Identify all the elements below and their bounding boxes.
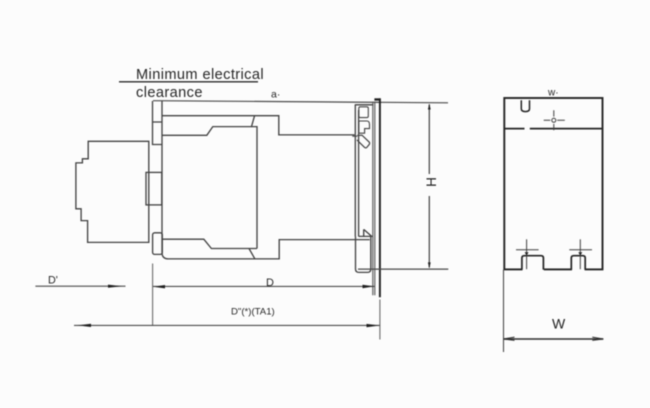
svg-text:clearance: clearance — [136, 85, 203, 101]
svg-text:w·: w· — [547, 88, 559, 99]
svg-text:H: H — [424, 177, 439, 187]
svg-text:D"(*)(TA1): D"(*)(TA1) — [231, 307, 275, 318]
svg-text:D': D' — [48, 274, 58, 286]
svg-text:D: D — [266, 277, 274, 289]
svg-text:a·: a· — [271, 89, 280, 101]
svg-text:W: W — [552, 316, 566, 332]
svg-text:Minimum electrical: Minimum electrical — [136, 67, 264, 83]
